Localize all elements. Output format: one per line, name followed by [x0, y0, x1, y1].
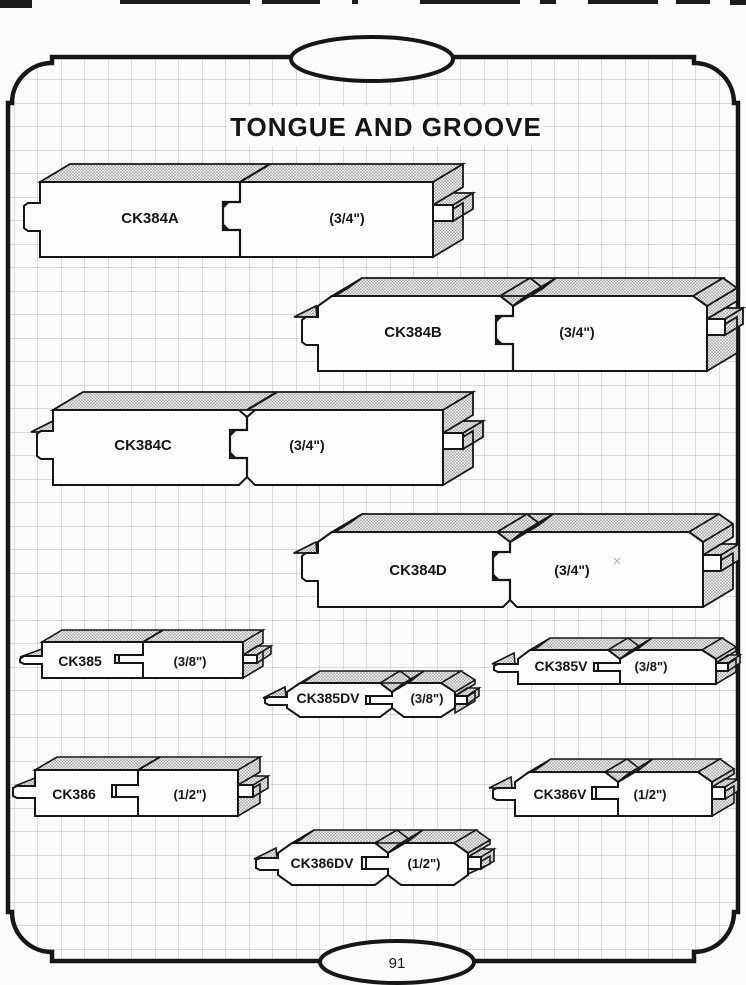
board-front-face [37, 410, 463, 485]
profile-code-label: CK386DV [290, 855, 354, 871]
top-ellipse [291, 37, 453, 81]
profile-ck384a: CK384A (3/4") [24, 164, 473, 257]
profile-code-label: CK384A [121, 210, 179, 227]
profile-size-label: (3/4") [559, 324, 594, 340]
profile-code-label: CK386V [534, 786, 588, 802]
profile-code-label: CK385 [58, 653, 102, 669]
profile-size-label: (1/2") [634, 787, 667, 802]
profile-size-label: (1/2") [174, 787, 207, 802]
profile-size-label: (3/8") [174, 654, 207, 669]
profile-code-label: CK384C [114, 437, 172, 454]
board-front-face [493, 772, 725, 816]
profile-size-label: (3/4") [329, 210, 364, 226]
page-title: TONGUE AND GROOVE [230, 112, 542, 142]
profile-ck384b: CK384B (3/4") [294, 278, 743, 371]
page-canvas: TONGUE AND GROOVE CK384A (3/4") CK384B (… [0, 0, 746, 985]
profile-ck384c: CK384C (3/4") [31, 392, 483, 485]
profile-code-label: CK386 [52, 786, 96, 802]
board-front-face [13, 770, 253, 816]
catalog-page: TONGUE AND GROOVE CK384A (3/4") CK384B (… [0, 0, 746, 985]
profile-code-label: CK384B [384, 324, 442, 341]
page-number: 91 [389, 955, 406, 972]
profile-code-label: CK385V [535, 658, 589, 674]
profile-size-label: (3/4") [289, 437, 324, 453]
profile-ck385: CK385 (3/8") [20, 630, 271, 678]
board-front-face [302, 532, 721, 607]
profile-size-label: (1/2") [408, 856, 441, 871]
profile-ck386: CK386 (1/2") [13, 757, 268, 816]
stray-x-mark: × [613, 553, 622, 570]
profile-code-label: CK384D [389, 562, 447, 579]
profile-size-label: (3/8") [635, 659, 668, 674]
profile-size-label: (3/4") [554, 562, 589, 578]
board-front-face [24, 182, 453, 257]
board-front-face [20, 642, 257, 678]
profile-code-label: CK385DV [296, 690, 360, 706]
profile-size-label: (3/8") [411, 691, 444, 706]
profile-ck384d: CK384D (3/4") × [294, 514, 739, 607]
board-front-face [494, 650, 728, 684]
